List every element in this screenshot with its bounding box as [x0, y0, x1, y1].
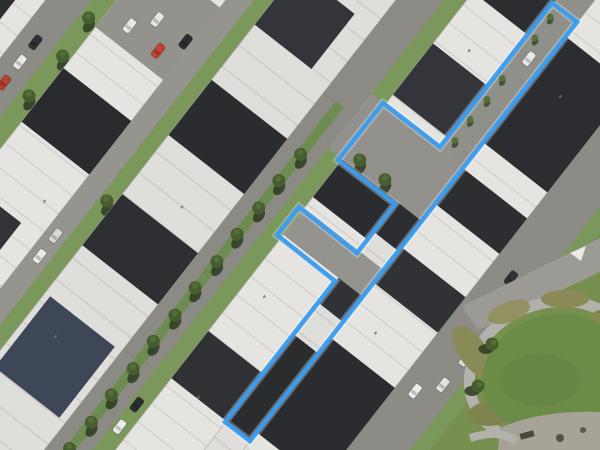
play-equipment [556, 434, 564, 442]
aerial-map-view[interactable] [0, 0, 600, 450]
lawn-shade [500, 354, 580, 406]
play-equipment [580, 427, 586, 433]
garden-bed [541, 290, 589, 308]
